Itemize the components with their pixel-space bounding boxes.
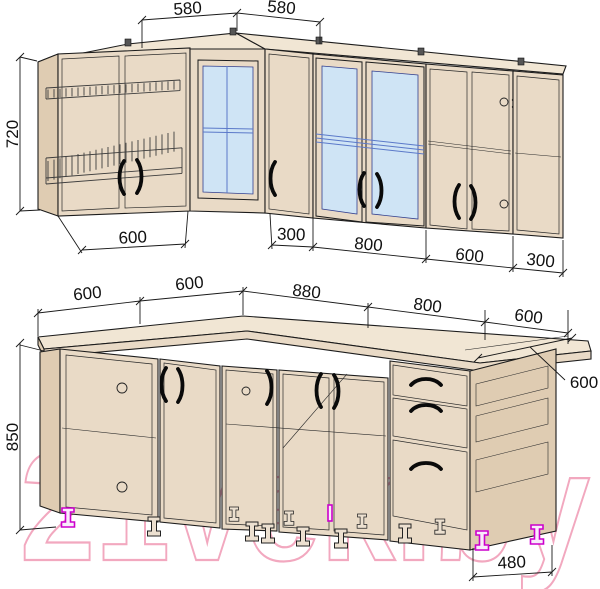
dim-600-upper-right: 600 [426, 236, 517, 272]
dim-label: 580 [267, 0, 297, 18]
dim-label: 580 [173, 0, 203, 19]
dim-label: 600 [570, 373, 598, 392]
base-800-cabinet [279, 370, 388, 540]
dim-label: 880 [291, 281, 321, 303]
hinge-cup-icon [242, 387, 250, 395]
kitchen-drawing-page: 580 580 720 600 300 800 600 300 [0, 0, 600, 589]
foot-accent [328, 505, 332, 521]
dim-300-upper: 300 [268, 214, 313, 249]
hinge-cup-icon [500, 200, 508, 208]
hinge-cup-icon [117, 482, 127, 492]
dim-label: 480 [497, 552, 526, 572]
upper-300-end-cabinet [513, 71, 563, 238]
hinge-block-icon [418, 48, 424, 55]
hinge-block-icon [316, 37, 322, 44]
dim-label: 600 [513, 305, 543, 327]
base-right-side [470, 349, 556, 550]
base-left-side-panel [40, 349, 60, 513]
base-600-cabinet [160, 359, 220, 528]
dim-label: 600 [174, 273, 204, 295]
hinge-block-icon [125, 39, 131, 46]
kitchen-technical-drawing: 580 580 720 600 300 800 600 300 [0, 0, 600, 589]
upper-cabinets [38, 28, 566, 238]
base-left-cabinet-front [60, 349, 158, 522]
hinge-cup-icon [117, 383, 127, 393]
dim-label: 300 [525, 250, 555, 272]
hinge-block-icon [230, 28, 236, 35]
dim-label: 600 [454, 245, 484, 267]
dim-label: 600 [72, 283, 102, 305]
dim-label: 850 [3, 423, 22, 451]
dim-300-upper-end: 300 [513, 240, 567, 277]
dim-600-base-2: 600 [140, 273, 247, 315]
dim-label: 800 [354, 234, 384, 255]
dim-720: 720 [3, 53, 40, 215]
hinge-block-icon [518, 58, 524, 65]
base-drawer-unit [390, 361, 470, 550]
dim-label: 600 [118, 227, 147, 247]
dim-600-upper-left: 600 [58, 211, 189, 254]
dim-label: 720 [3, 120, 22, 148]
dim-label: 800 [412, 294, 442, 316]
dim-label: 300 [277, 225, 306, 245]
base-cabinets [38, 316, 591, 550]
upper-left-side-panel [38, 54, 58, 216]
corner-glass-panel [203, 66, 253, 194]
hinge-cup-icon [500, 98, 508, 106]
glass-panel [322, 66, 357, 214]
